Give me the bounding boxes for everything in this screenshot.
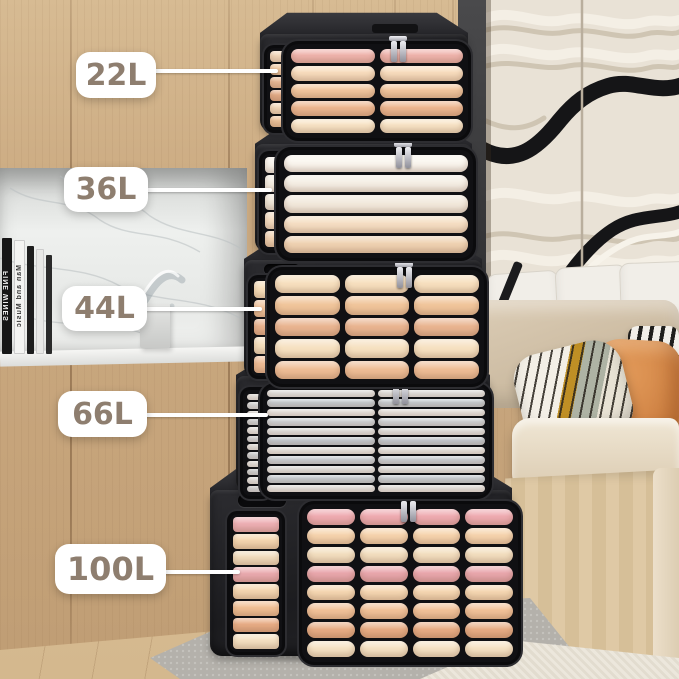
- capacity-label-100l: 100L: [55, 544, 166, 594]
- clothes-roll: [307, 528, 355, 544]
- clothes-roll: [267, 390, 375, 397]
- clothes-roll: [307, 566, 355, 582]
- label-line-36l: [142, 188, 272, 192]
- clothes-roll: [378, 437, 486, 444]
- clothes-roll: [291, 84, 375, 98]
- product-photo-stage: FINE WINES Man and Music: [0, 0, 679, 679]
- clothes-column: [307, 509, 355, 657]
- clothes-roll: [360, 641, 408, 657]
- clothes-roll: [267, 437, 375, 444]
- label-line-100l: [160, 570, 240, 574]
- clothes-roll: [414, 275, 479, 293]
- clothes-roll: [414, 339, 479, 357]
- clothes-roll: [345, 361, 410, 379]
- capacity-label-44l: 44L: [62, 286, 147, 331]
- clothes-roll: [267, 399, 375, 406]
- box-front-window: [263, 386, 489, 496]
- clothes-roll: [414, 361, 479, 379]
- box-front-window: [302, 504, 518, 662]
- box-front-window: [270, 270, 484, 384]
- clothes-roll: [233, 584, 279, 599]
- clothes-roll: [291, 119, 375, 133]
- clothes-roll: [360, 622, 408, 638]
- clothes-roll: [414, 296, 479, 314]
- box-side-window: [230, 514, 282, 652]
- clothes-roll: [380, 101, 464, 115]
- clothes-roll: [465, 547, 513, 563]
- clothes-roll: [345, 296, 410, 314]
- clothes-roll: [378, 475, 486, 482]
- label-line-66l: [141, 413, 268, 417]
- zipper-pull-icon: [392, 264, 416, 292]
- capacity-label-66l: 66L: [58, 391, 147, 437]
- clothes-roll: [233, 567, 279, 582]
- clothes-roll: [275, 361, 340, 379]
- clothes-roll: [360, 603, 408, 619]
- clothes-roll: [414, 318, 479, 336]
- clothes-roll: [465, 622, 513, 638]
- zipper-pull-icon: [396, 498, 420, 526]
- capacity-label-36l: 36L: [64, 167, 148, 212]
- clothes-roll: [378, 447, 486, 454]
- clothes-column: [291, 49, 375, 133]
- clothes-column: [275, 275, 340, 379]
- box-front-window: [279, 150, 473, 258]
- clothes-roll: [284, 155, 468, 172]
- clothes-roll: [360, 547, 408, 563]
- clothes-roll: [360, 585, 408, 601]
- clothes-column: [233, 517, 279, 649]
- clothes-roll: [307, 585, 355, 601]
- clothes-roll: [233, 618, 279, 633]
- clothes-roll: [307, 641, 355, 657]
- clothes-column: [414, 275, 479, 379]
- clothes-roll: [413, 641, 461, 657]
- clothes-roll: [267, 485, 375, 492]
- clothes-column: [465, 509, 513, 657]
- clothes-roll: [380, 119, 464, 133]
- clothes-roll: [267, 475, 375, 482]
- clothes-roll: [284, 236, 468, 253]
- clothes-roll: [233, 551, 279, 566]
- clothes-roll: [233, 601, 279, 616]
- clothes-column: [413, 509, 461, 657]
- clothes-roll: [413, 566, 461, 582]
- clothes-roll: [465, 641, 513, 657]
- clothes-roll: [345, 339, 410, 357]
- clothes-roll: [233, 534, 279, 549]
- clothes-roll: [378, 485, 486, 492]
- label-line-22l: [150, 69, 278, 73]
- storage-box-22l: [260, 12, 468, 132]
- clothes-roll: [413, 585, 461, 601]
- label-line-44l: [141, 307, 262, 311]
- clothes-roll: [378, 466, 486, 473]
- clothes-roll: [360, 566, 408, 582]
- clothes-roll: [307, 603, 355, 619]
- clothes-column: [284, 155, 468, 253]
- clothes-roll: [413, 547, 461, 563]
- clothes-roll: [465, 603, 513, 619]
- clothes-roll: [360, 528, 408, 544]
- clothes-roll: [291, 101, 375, 115]
- clothes-roll: [307, 547, 355, 563]
- clothes-roll: [267, 409, 375, 416]
- clothes-roll: [267, 456, 375, 463]
- clothes-roll: [291, 66, 375, 80]
- clothes-roll: [267, 447, 375, 454]
- clothes-roll: [275, 275, 340, 293]
- zipper-pull-icon: [391, 144, 415, 172]
- clothes-roll: [345, 318, 410, 336]
- capacity-label-22l: 22L: [76, 52, 156, 98]
- box-front-window: [286, 44, 468, 138]
- clothes-roll: [291, 49, 375, 63]
- clothes-roll: [233, 634, 279, 649]
- clothes-column: [267, 390, 375, 492]
- clothes-roll: [413, 603, 461, 619]
- clothes-roll: [378, 418, 486, 425]
- clothes-roll: [284, 195, 468, 212]
- clothes-roll: [378, 456, 486, 463]
- clothes-roll: [465, 528, 513, 544]
- clothes-roll: [465, 566, 513, 582]
- clothes-roll: [465, 585, 513, 601]
- clothes-roll: [233, 517, 279, 532]
- clothes-roll: [380, 66, 464, 80]
- clothes-roll: [284, 175, 468, 192]
- storage-box-36l: [255, 124, 472, 252]
- clothes-roll: [275, 296, 340, 314]
- clothes-roll: [380, 84, 464, 98]
- clothes-roll: [378, 409, 486, 416]
- clothes-roll: [267, 466, 375, 473]
- clothes-roll: [307, 509, 355, 525]
- zipper-pull-icon: [388, 380, 412, 408]
- clothes-roll: [267, 428, 375, 435]
- clothes-roll: [307, 622, 355, 638]
- clothes-roll: [413, 622, 461, 638]
- storage-box-44l: [244, 238, 482, 378]
- clothes-roll: [284, 216, 468, 233]
- clothes-roll: [465, 509, 513, 525]
- clothes-column: [360, 509, 408, 657]
- clothes-roll: [275, 318, 340, 336]
- zipper-pull-icon: [386, 38, 410, 66]
- bed-base-cushion-strip: [653, 468, 679, 679]
- lid-label: [372, 24, 418, 33]
- clothes-roll: [378, 428, 486, 435]
- clothes-roll: [413, 528, 461, 544]
- clothes-roll: [275, 339, 340, 357]
- clothes-roll: [267, 418, 375, 425]
